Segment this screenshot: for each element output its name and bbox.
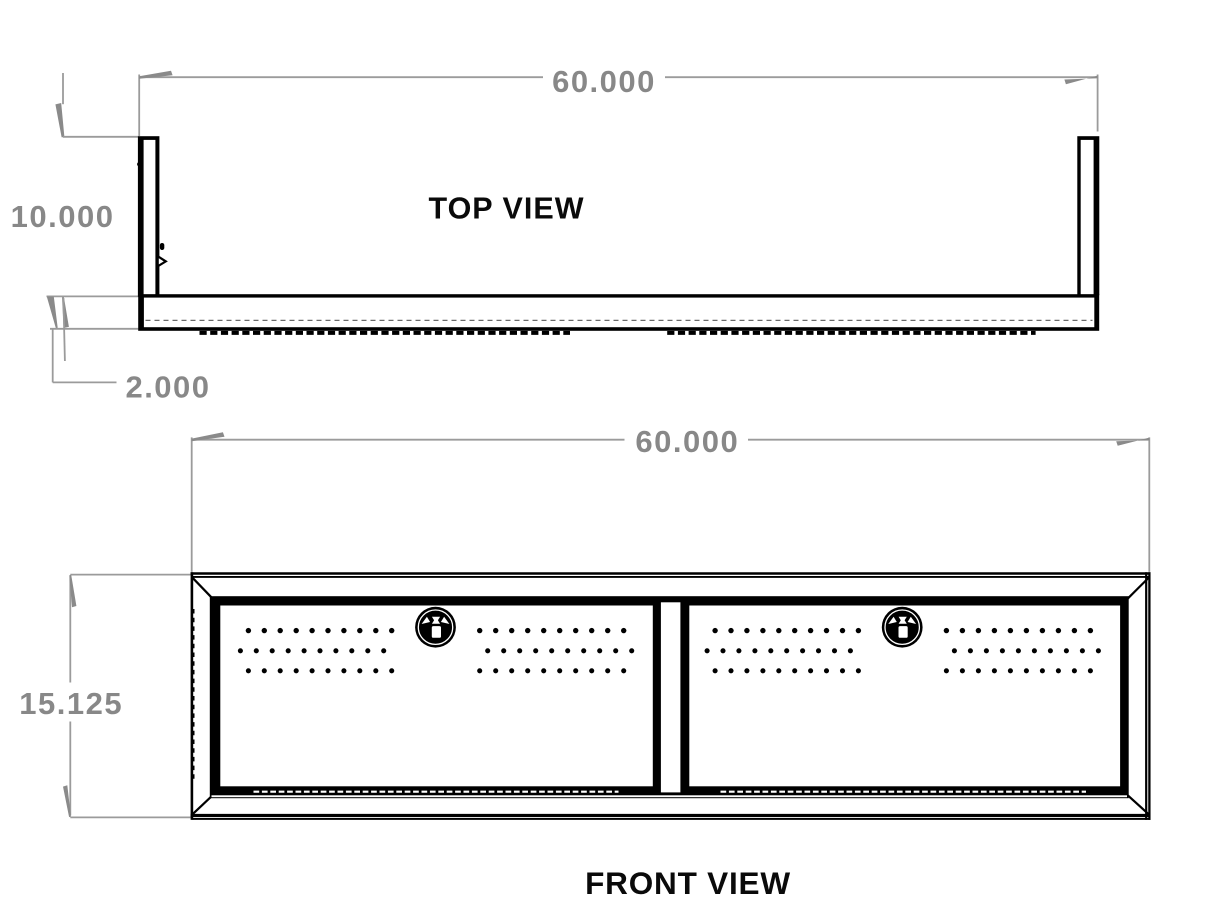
- svg-text:60.000: 60.000: [552, 64, 656, 99]
- svg-text:FRONT VIEW: FRONT VIEW: [585, 865, 791, 901]
- svg-text:60.000: 60.000: [635, 424, 739, 459]
- svg-text:10.000: 10.000: [11, 199, 115, 234]
- svg-text:TOP VIEW: TOP VIEW: [428, 192, 584, 226]
- svg-text:15.125: 15.125: [19, 686, 123, 721]
- svg-text:2.000: 2.000: [125, 370, 210, 405]
